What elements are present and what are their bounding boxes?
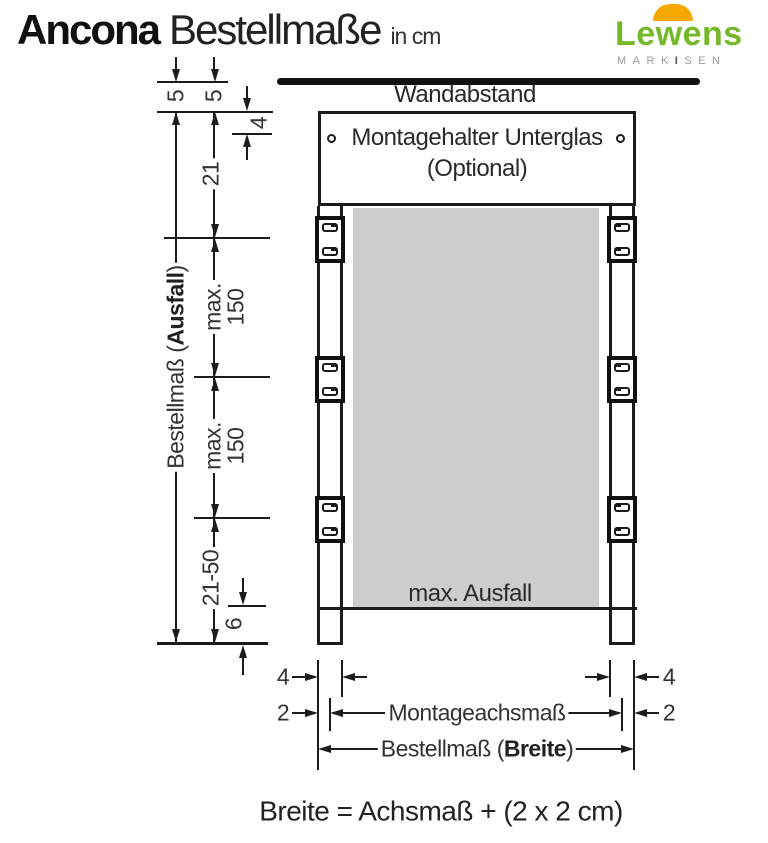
- mount-holder-label-line1: Montagehalter Unterglas: [348, 126, 605, 150]
- dim-label-gap-top-1: 5: [162, 87, 189, 105]
- dim-tail: [343, 712, 385, 714]
- dim-arrow: [211, 363, 219, 376]
- bracket-slot: [614, 223, 630, 232]
- dim-arrow: [211, 519, 219, 532]
- bracket-slot: [322, 363, 338, 372]
- dim-tick: [228, 605, 266, 607]
- bracket-slot: [322, 387, 338, 396]
- logo-brand: Lewens: [615, 15, 743, 54]
- dim-arrow: [211, 224, 219, 237]
- rail-right-outer-line: [632, 206, 635, 645]
- dim-label-foot-offset: 6: [220, 615, 247, 633]
- max-value: 150: [225, 283, 248, 331]
- order-width-bold: Breite: [504, 735, 566, 761]
- mounting-bracket: [315, 356, 345, 403]
- dim-arrow: [243, 134, 251, 147]
- bracket-slot: [614, 503, 630, 512]
- rail-left-inner-line: [340, 206, 343, 645]
- dim-arrow: [211, 504, 219, 517]
- bracket-slot: [322, 247, 338, 256]
- dim-label-order-drop: Bestellmaß (Ausfall): [162, 262, 189, 471]
- fabric-panel: [353, 208, 599, 608]
- logo-tagline: MARKISEN: [617, 55, 726, 67]
- lewens-logo: Lewens MARKISEN: [615, 4, 765, 68]
- screw-hole-icon: [616, 134, 625, 143]
- dim-arrow: [172, 69, 180, 82]
- mounting-bracket: [607, 356, 637, 403]
- bracket-slot: [614, 363, 630, 372]
- order-width-suffix: ): [566, 735, 573, 761]
- dim-arrow: [239, 592, 247, 605]
- dim-arrow: [305, 673, 318, 681]
- dim-tail: [331, 748, 383, 750]
- mounting-bracket: [315, 496, 345, 543]
- dim-label-rail-width-left: 4: [274, 665, 292, 688]
- screw-hole-icon: [327, 134, 336, 143]
- dim-arrow: [597, 673, 610, 681]
- dim-tick: [232, 133, 272, 135]
- title-product: Bestellmaße: [169, 6, 380, 53]
- dim-label-foot-section: 21-50: [197, 547, 224, 609]
- rail-right-inner-line: [609, 206, 612, 645]
- dim-label-holder-height: 4: [245, 114, 272, 132]
- dim-tick: [194, 517, 270, 519]
- dim-tail: [568, 712, 609, 714]
- dim-arrow: [634, 673, 647, 681]
- max-word: max.: [202, 422, 225, 470]
- dim-arrow: [609, 709, 622, 717]
- dim-arrow: [172, 629, 180, 642]
- dim-label-axis-offset-left: 2: [274, 701, 292, 724]
- order-width-prefix: Bestellmaß (: [381, 735, 504, 761]
- bracket-slot: [322, 527, 338, 536]
- dim-arrow: [330, 709, 343, 717]
- dim-label-gap-top-2: 5: [200, 87, 227, 105]
- wall-distance-label: Wandabstand: [391, 83, 539, 107]
- rail-left-outer-line: [317, 206, 320, 645]
- order-drop-prefix: Bestellmaß (: [162, 346, 188, 469]
- title-brand: Ancona: [17, 6, 159, 53]
- max-word: max.: [202, 283, 225, 331]
- dim-arrow: [239, 645, 247, 658]
- mounting-bracket: [607, 496, 637, 543]
- rail-right-cap: [609, 642, 635, 645]
- dim-label-max-drop-lower: max. 150: [200, 419, 251, 473]
- dim-arrow: [172, 112, 180, 125]
- order-drop-suffix: ): [162, 265, 188, 272]
- dim-arrow: [211, 239, 219, 252]
- dim-tail: [647, 676, 659, 678]
- dim-arrow: [342, 673, 355, 681]
- dim-tail: [585, 676, 597, 678]
- dim-tail: [355, 676, 367, 678]
- order-width-label: Bestellmaß (Breite): [378, 737, 576, 760]
- axis-dimension-label: Montageachsmaß: [385, 701, 568, 724]
- ancona-dimension-sheet: AnconaBestellmaßein cm Lewens MARKISEN W…: [0, 0, 768, 843]
- bracket-slot: [614, 387, 630, 396]
- dim-arrow: [211, 629, 219, 642]
- dim-stem: [242, 578, 244, 593]
- mounting-bracket: [607, 216, 637, 263]
- dim-tail: [570, 748, 621, 750]
- title-unit: in cm: [390, 23, 440, 49]
- dim-arrow: [621, 745, 634, 753]
- bracket-slot: [614, 527, 630, 536]
- dim-tick: [194, 376, 270, 378]
- mounting-bracket: [315, 216, 345, 263]
- dim-arrow: [318, 745, 331, 753]
- dim-arrow: [243, 98, 251, 111]
- bracket-slot: [322, 503, 338, 512]
- dim-label-head-section: 21: [197, 159, 224, 190]
- frame-bottom-line: [317, 607, 637, 610]
- dim-arrow: [211, 378, 219, 391]
- dim-tail: [292, 712, 306, 714]
- dim-stem: [246, 146, 248, 160]
- bracket-slot: [614, 247, 630, 256]
- order-drop-bold: Ausfall: [162, 272, 188, 345]
- dim-arrow: [305, 709, 318, 717]
- width-formula: Breite = Achsmaß + (2 x 2 cm): [256, 798, 626, 827]
- dim-label-axis-offset-right: 2: [660, 701, 678, 724]
- mount-holder-label-line2: (Optional): [424, 157, 530, 181]
- dim-ref-line: [157, 642, 268, 645]
- fabric-label: max. Ausfall: [405, 582, 534, 606]
- logo-tagline-right: SEN: [684, 55, 726, 67]
- max-value: 150: [225, 422, 248, 470]
- logo-tagline-mid: I: [675, 55, 685, 67]
- logo-tagline-left: MARK: [617, 55, 675, 67]
- bracket-slot: [322, 223, 338, 232]
- dim-arrow: [211, 69, 219, 82]
- dim-label-max-drop-upper: max. 150: [200, 280, 251, 334]
- rail-left-cap: [317, 642, 343, 645]
- dim-tail: [647, 712, 659, 714]
- dim-arrow: [634, 709, 647, 717]
- dim-arrow: [211, 112, 219, 125]
- dim-tail: [292, 676, 306, 678]
- dim-label-rail-width-right: 4: [660, 665, 678, 688]
- dim-stem: [242, 657, 244, 675]
- page-title: AnconaBestellmaßein cm: [17, 6, 440, 54]
